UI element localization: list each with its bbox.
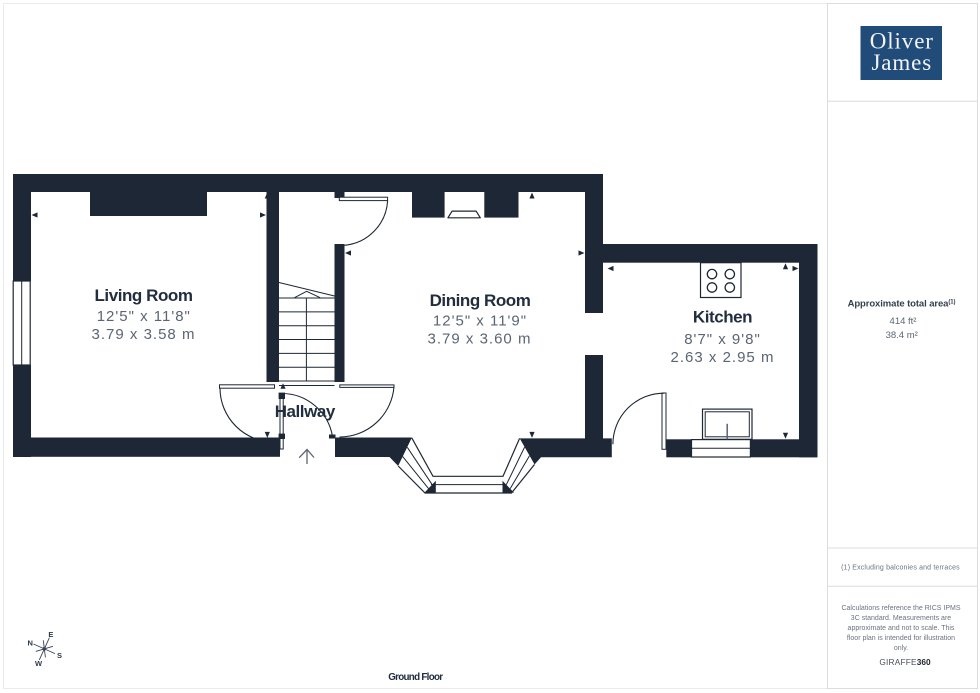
svg-text:Approximate total area(1): Approximate total area(1) xyxy=(848,299,956,310)
svg-text:414 ft²: 414 ft² xyxy=(890,316,917,327)
svg-text:Kitchen: Kitchen xyxy=(693,308,752,327)
svg-text:approximate and not to scale.: approximate and not to scale. This xyxy=(848,625,955,632)
svg-text:floor plan is intended for ill: floor plan is intended for illustration xyxy=(847,635,955,642)
svg-text:E: E xyxy=(48,630,53,639)
svg-text:12'5" x 11'8": 12'5" x 11'8" xyxy=(97,308,191,325)
svg-text:3C standard. Measurements are: 3C standard. Measurements are xyxy=(851,615,951,622)
svg-text:2.63 x 2.95 m: 2.63 x 2.95 m xyxy=(671,349,775,366)
svg-text:only.: only. xyxy=(894,645,908,652)
svg-text:S: S xyxy=(57,651,62,660)
svg-text:Calculations reference the RIC: Calculations reference the RICS IPMS xyxy=(841,605,960,612)
svg-text:Hallway: Hallway xyxy=(275,402,336,421)
svg-text:James: James xyxy=(871,50,932,75)
svg-text:W: W xyxy=(35,659,43,668)
svg-text:Ground Floor: Ground Floor xyxy=(388,672,443,683)
svg-text:N: N xyxy=(27,639,32,648)
svg-text:Living Room: Living Room xyxy=(95,286,193,305)
svg-text:12'5" x 11'9": 12'5" x 11'9" xyxy=(433,313,527,330)
svg-text:3.79 x 3.60 m: 3.79 x 3.60 m xyxy=(428,331,532,348)
svg-text:8'7" x 9'8": 8'7" x 9'8" xyxy=(684,331,761,348)
svg-text:3.79 x 3.58 m: 3.79 x 3.58 m xyxy=(92,326,196,343)
svg-text:GIRAFFE360: GIRAFFE360 xyxy=(879,657,931,667)
svg-text:Dining Room: Dining Room xyxy=(430,291,531,310)
svg-text:(1) Excluding balconies and te: (1) Excluding balconies and terraces xyxy=(841,565,960,572)
svg-text:38.4 m²: 38.4 m² xyxy=(886,330,918,341)
